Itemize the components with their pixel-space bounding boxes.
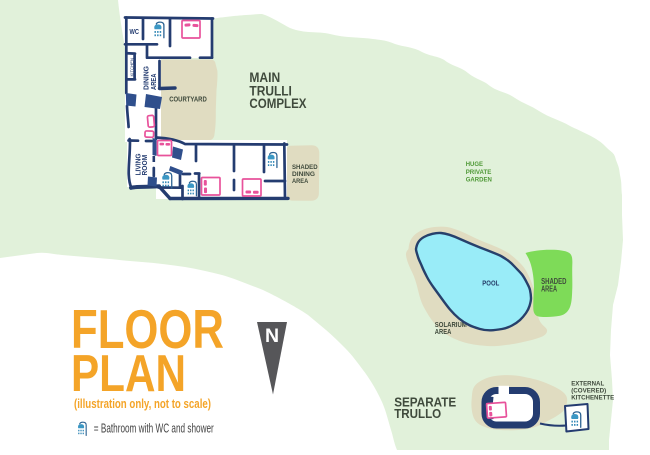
svg-text:N: N [265,325,279,347]
svg-text:WC: WC [130,27,140,36]
svg-text:PLAN: PLAN [71,345,186,403]
svg-text:POOL: POOL [482,278,499,287]
svg-text:PRIVATE: PRIVATE [466,169,492,176]
svg-text:KITCHENETTE: KITCHENETTE [571,395,615,402]
svg-text:= Bathroom with WC and shower: = Bathroom with WC and shower [94,421,214,436]
svg-text:GARDEN: GARDEN [466,177,492,184]
svg-text:(illustration only, not to sca: (illustration only, not to scale) [74,397,211,411]
svg-text:HUGE: HUGE [466,161,484,168]
svg-text:AREA: AREA [541,285,557,294]
svg-text:ROOM: ROOM [140,155,149,176]
svg-text:(COVERED): (COVERED) [571,388,606,395]
svg-text:KITCHEN: KITCHEN [130,58,135,77]
svg-text:AREA: AREA [435,327,452,336]
svg-text:TRULLO: TRULLO [394,407,441,421]
svg-text:AREA: AREA [149,74,158,91]
svg-text:AREA: AREA [292,178,308,185]
svg-text:EXTERNAL: EXTERNAL [571,381,604,388]
svg-text:COMPLEX: COMPLEX [249,96,306,111]
svg-text:COURTYARD: COURTYARD [169,95,207,104]
